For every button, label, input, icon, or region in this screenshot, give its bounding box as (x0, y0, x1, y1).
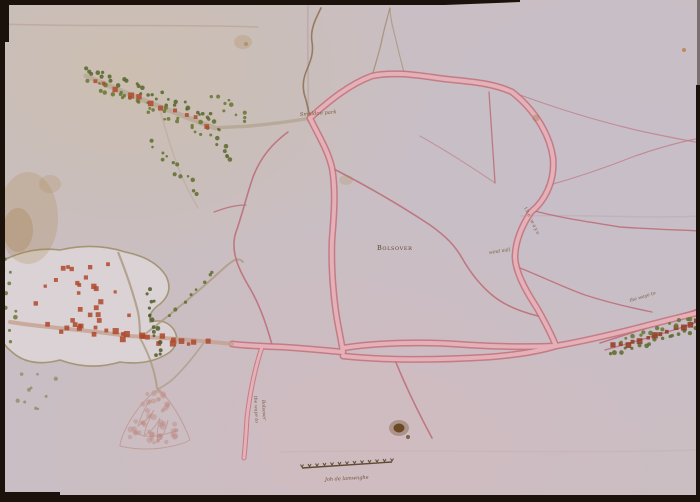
house-dot (88, 313, 93, 318)
tree-dot (150, 317, 155, 322)
scale-tick (316, 464, 319, 467)
tree-dot (184, 301, 187, 304)
tree-dot (178, 174, 182, 178)
scrub-dot (172, 422, 177, 427)
tree-dot (149, 314, 152, 317)
scale-tick (308, 464, 311, 467)
house-dot (59, 330, 63, 334)
village-enclosure (0, 246, 177, 366)
house-dot (139, 333, 145, 339)
scale-tick (301, 465, 304, 468)
scrub-dot (145, 408, 150, 413)
scale-tick (361, 461, 364, 464)
signature: Joh de lamwnghe (324, 475, 369, 483)
house-dot (124, 331, 130, 337)
tree-dot (8, 329, 11, 332)
house-dot (44, 285, 47, 288)
house-dot (610, 342, 615, 347)
house-dot (114, 290, 117, 293)
scrub-dot (141, 402, 146, 407)
tree-dot (173, 172, 177, 176)
sw-road-label-1: the waye to (252, 396, 259, 424)
tree-dot (630, 334, 635, 339)
house-dot (112, 87, 117, 92)
tree-dot (164, 106, 168, 110)
scrub-dot (145, 392, 149, 396)
tree-dot (222, 109, 225, 112)
tree-dot (34, 407, 37, 410)
house-dot (94, 305, 99, 310)
house-dot (194, 115, 198, 119)
scrub-dot (156, 389, 161, 394)
tree-dot (229, 102, 234, 107)
tree-dot (619, 341, 622, 344)
scrub-dot (171, 428, 177, 434)
sw-road-label-2: Bolsover (260, 399, 267, 421)
tree-dot (175, 119, 179, 123)
house-dot (173, 108, 177, 112)
tree-dot (54, 377, 58, 381)
tree-dot (151, 93, 154, 96)
tree-dot (163, 118, 166, 121)
tree-dot (137, 84, 141, 88)
house-dot (104, 329, 108, 333)
tree-dot (243, 120, 246, 123)
scale-tick (331, 463, 334, 466)
house-dot (93, 79, 97, 83)
house-dot (637, 338, 643, 344)
tree-dot (9, 340, 12, 343)
tree-dot (198, 120, 203, 125)
tree-dot (121, 96, 124, 99)
house-dot (70, 318, 75, 323)
tree-dot (160, 90, 164, 94)
tree-dot (661, 337, 664, 340)
house-dot (79, 324, 84, 329)
tree-dot (215, 143, 218, 146)
scrub-dot (162, 408, 166, 412)
tree-dot (84, 66, 88, 70)
tree-dot (45, 395, 48, 398)
tree-dot (187, 175, 190, 178)
tree-dot (225, 154, 229, 158)
tree-dot (228, 157, 233, 162)
tree-dot (154, 353, 158, 357)
tree-dot (210, 271, 213, 274)
scrub-dot (164, 440, 168, 444)
house-dot (658, 332, 662, 336)
tree-dot (647, 342, 651, 346)
tree-dot (173, 103, 176, 106)
right-edge-road-label: the waye to (629, 290, 657, 304)
tree-dot (158, 340, 163, 345)
tree-dot (161, 158, 165, 162)
scale-tick (353, 461, 356, 464)
tree-dot (16, 399, 20, 403)
scrub-dot (128, 426, 134, 432)
house-dot (179, 338, 185, 344)
tree-dot (98, 82, 101, 85)
tree-dot (194, 130, 197, 133)
tree-dot (9, 271, 12, 274)
house-dot (77, 283, 81, 287)
tree-dot (109, 79, 113, 83)
tree-dot (185, 106, 190, 111)
tree-dot (210, 95, 213, 98)
tree-dot (168, 314, 171, 317)
manuscript-map-photo: Bolsover Smaldon park wind mill the waye… (0, 0, 700, 502)
scrub-dot (151, 390, 157, 396)
paper-creases (0, 6, 700, 452)
house-dot (70, 267, 74, 271)
tree-dot (612, 350, 617, 355)
scale-tick (376, 460, 379, 463)
scale-bar: Joh de lamwnghe (301, 459, 394, 484)
tree-dot (190, 126, 193, 129)
tree-dot (99, 75, 103, 79)
tree-dot (150, 139, 154, 143)
house-dot (688, 322, 694, 328)
tree-dot (111, 92, 115, 96)
house-dot (92, 332, 97, 337)
scrub-dot (137, 430, 142, 435)
house-dot (61, 266, 66, 271)
tree-dot (148, 287, 152, 291)
tree-dot (641, 330, 645, 334)
house-dot (64, 326, 69, 331)
tree-dot (235, 114, 238, 117)
tree-dot (215, 136, 220, 141)
tree-dot (151, 146, 154, 149)
house-dot (73, 322, 78, 327)
house-dot (646, 336, 650, 340)
tree-dot (207, 117, 210, 120)
tree-dot (151, 108, 155, 112)
tree-dot (624, 337, 627, 340)
tree-dot (184, 101, 187, 104)
house-dot (106, 262, 110, 266)
house-dot (626, 342, 632, 348)
park-label: Smaldon park (300, 109, 337, 118)
tree-dot (228, 99, 231, 102)
scrub-dot (128, 435, 132, 439)
tree-dot (688, 331, 692, 335)
tree-dot (148, 107, 151, 110)
tree-dot (85, 79, 89, 83)
tree-dot (101, 71, 104, 74)
tree-dot (201, 112, 205, 116)
tree-dot (152, 330, 156, 334)
house-dot (94, 326, 98, 330)
scale-tick (368, 460, 371, 463)
tree-dot (198, 113, 201, 116)
map-drawing: Bolsover Smaldon park wind mill the waye… (0, 0, 700, 502)
house-dot (88, 265, 92, 269)
tree-dot (20, 372, 24, 376)
tree-dot (36, 373, 39, 376)
tree-dot (159, 353, 162, 356)
tree-dot (243, 111, 247, 115)
tree-dot (153, 334, 156, 337)
tree-dot (172, 161, 175, 164)
tree-dot (23, 401, 26, 404)
tree-dot (87, 70, 91, 74)
tree-dot (13, 315, 18, 320)
house-dot (77, 291, 81, 295)
tree-dot (216, 95, 220, 99)
settlement-label: Bolsover (377, 244, 412, 252)
scrub-dot (161, 393, 167, 399)
tree-dot (163, 109, 167, 113)
house-dot (96, 312, 101, 317)
tree-dot (655, 326, 659, 330)
scrub-dot (148, 399, 152, 403)
tree-dot (7, 281, 11, 285)
scale-tick (346, 462, 349, 465)
tree-dot (119, 92, 123, 96)
scrub-dot (142, 423, 146, 427)
tree-dot (167, 117, 171, 121)
house-dot (665, 330, 669, 334)
tree-dot (619, 350, 624, 355)
tree-dot (175, 162, 179, 166)
house-dot (185, 113, 189, 117)
mill-label: wind mill (488, 247, 511, 256)
scale-tick (391, 459, 394, 462)
house-dot (98, 299, 103, 304)
tree-dot (648, 331, 653, 336)
house-dot (94, 286, 99, 291)
house-dot (54, 278, 58, 282)
house-dot (187, 342, 190, 345)
scrub-dot (150, 436, 155, 441)
house-dot (136, 94, 141, 99)
house-dot (34, 301, 38, 305)
tree-dot (14, 310, 17, 313)
tree-dot (190, 293, 193, 296)
house-dot (145, 335, 150, 340)
tree-dot (671, 334, 675, 338)
tree-dot (153, 300, 156, 303)
tree-dot (688, 317, 693, 322)
tree-dot (192, 189, 196, 193)
house-dot (206, 339, 211, 344)
house-dot (191, 340, 196, 345)
house-dot (97, 318, 102, 323)
house-dot (45, 322, 50, 327)
house-dot (113, 328, 119, 334)
tree-dot (146, 93, 150, 97)
tree-dot (199, 133, 202, 136)
house-dot (120, 336, 126, 342)
tree-dot (108, 74, 112, 78)
house-dot (66, 265, 70, 269)
house-dot (148, 101, 154, 107)
house-dot (128, 93, 134, 99)
tree-dot (209, 134, 212, 137)
tree-dot (173, 307, 177, 311)
tree-dot (677, 318, 681, 322)
scale-tick (323, 463, 326, 466)
tree-dot (668, 322, 671, 325)
house-dot (160, 333, 165, 338)
tree-dot (147, 111, 151, 115)
scale-tick (338, 462, 341, 465)
tree-dot (155, 326, 160, 331)
tree-dot (660, 327, 664, 331)
scrub-dot (159, 420, 164, 425)
tree-dot (191, 178, 195, 182)
tree-dot (161, 152, 164, 155)
tree-dot (148, 306, 151, 309)
house-dot (102, 82, 106, 86)
tree-dot (203, 280, 207, 284)
scrub-dot (157, 434, 163, 440)
house-dot (84, 275, 88, 279)
house-dot (78, 307, 83, 312)
tree-dot (165, 155, 168, 158)
tree-dot (103, 90, 107, 94)
tree-dot (677, 332, 681, 336)
tree-dot (167, 98, 170, 101)
tree-dot (209, 112, 213, 116)
tree-dot (96, 70, 101, 75)
tree-dot (223, 102, 226, 105)
scale-tick (383, 459, 386, 462)
tree-dot (218, 128, 221, 131)
scrub-dot (156, 397, 161, 402)
tree-dot (212, 119, 217, 124)
tree-dot (137, 100, 141, 104)
house-dot (631, 340, 635, 344)
tree-dot (99, 89, 103, 93)
tree-dot (152, 325, 156, 329)
scrub-dot (152, 441, 156, 445)
tree-dot (122, 77, 126, 81)
tree-dot (140, 85, 145, 90)
tree-dot (674, 323, 679, 328)
tree-dot (609, 352, 612, 355)
house-dot (171, 338, 176, 343)
tree-dot (195, 288, 198, 291)
tree-dot (146, 292, 149, 295)
tree-dot (155, 98, 158, 101)
tree-dot (30, 386, 33, 389)
tree-dot (243, 116, 246, 119)
tree-dot (174, 100, 178, 104)
tree-dot (194, 192, 198, 196)
house-dot (204, 124, 209, 129)
house-dot (127, 314, 131, 318)
house-dot (681, 325, 687, 331)
scrub-dot (133, 419, 138, 424)
thin-roads (214, 92, 700, 438)
tree-dot (159, 348, 163, 352)
house-dot (158, 106, 163, 111)
scrub-dot (146, 413, 152, 419)
tree-dot (224, 144, 229, 149)
tree-dot (223, 149, 227, 153)
